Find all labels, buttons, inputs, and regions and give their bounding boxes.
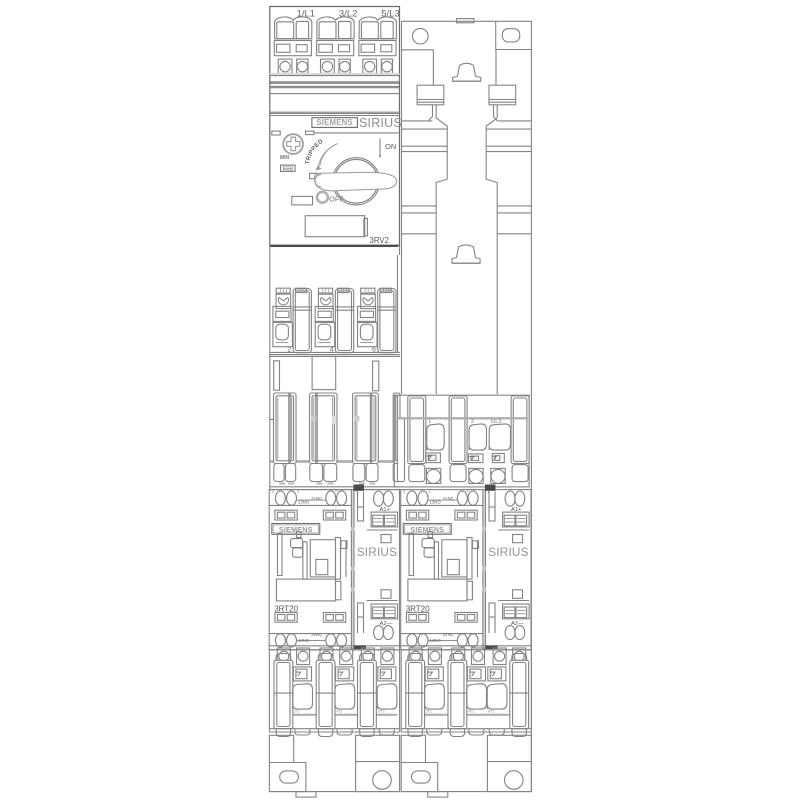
svg-text:SIEMENS: SIEMENS [279,525,313,534]
svg-text:3: 3 [272,490,274,494]
svg-text:6T3: 6T3 [488,710,494,714]
svg-text:TRIPPED: TRIPPED [305,139,325,165]
svg-text:4T2: 4T2 [336,710,342,714]
svg-text:22NC: 22NC [443,632,454,637]
svg-text:SIEMENS: SIEMENS [410,525,444,534]
svg-text:MIN: MIN [280,155,290,161]
svg-text:4T2: 4T2 [468,710,474,714]
svg-text:3: 3 [403,490,405,494]
svg-text:14NO: 14NO [430,638,442,643]
svg-text:3: 3 [471,419,474,425]
svg-text:ON: ON [385,142,396,151]
svg-text:14NO: 14NO [298,638,310,643]
svg-text:2T1: 2T1 [294,710,300,714]
svg-text:1: 1 [428,419,431,425]
svg-text:5: 5 [335,489,337,493]
svg-text:13NO: 13NO [430,500,442,505]
svg-text:5: 5 [467,489,469,493]
svg-text:4: 4 [429,490,431,494]
svg-text:6T3: 6T3 [378,710,384,714]
svg-text:SIRIUS: SIRIUS [357,545,398,559]
svg-text:SIRIUS: SIRIUS [359,116,402,130]
svg-text:21NC: 21NC [443,496,454,501]
svg-text:SIEMENS: SIEMENS [316,118,353,127]
svg-text:4: 4 [297,490,299,494]
svg-text:3RV2: 3RV2 [370,236,389,245]
svg-text:OFF: OFF [329,195,344,204]
svg-text:22NC: 22NC [311,632,322,637]
svg-text:21NC: 21NC [311,496,322,501]
svg-text:13NO: 13NO [298,500,310,505]
svg-text:SIRIUS: SIRIUS [488,545,529,559]
svg-text:2T1: 2T1 [426,710,432,714]
